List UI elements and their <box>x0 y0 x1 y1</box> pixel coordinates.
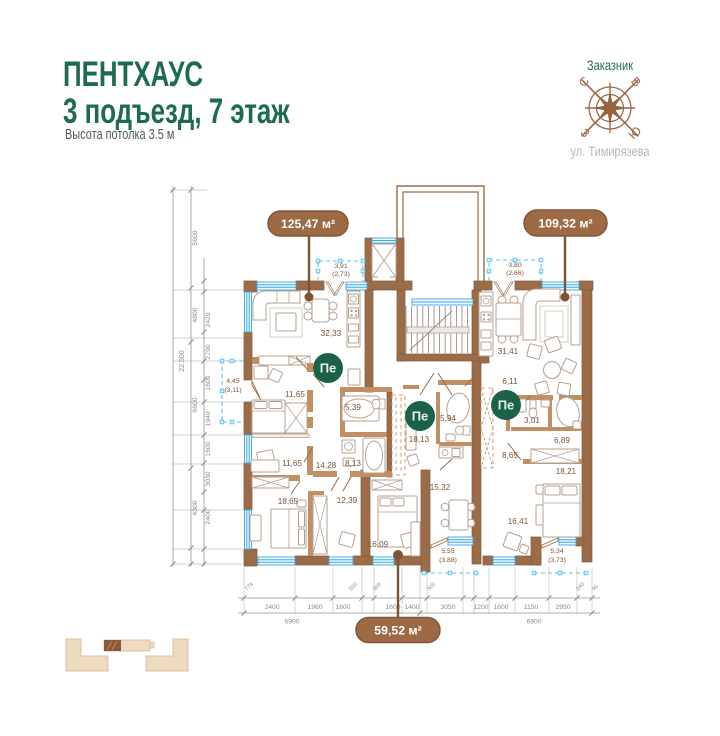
svg-text:1600: 1600 <box>335 604 350 611</box>
svg-text:5,55: 5,55 <box>441 548 454 555</box>
svg-text:ПЕНТХАУС: ПЕНТХАУС <box>63 54 203 94</box>
svg-text:2420: 2420 <box>205 312 212 327</box>
svg-text:6900: 6900 <box>284 619 299 626</box>
svg-text:22.500: 22.500 <box>179 350 186 372</box>
svg-text:8,13: 8,13 <box>345 459 361 468</box>
svg-text:32,33: 32,33 <box>321 329 342 338</box>
svg-text:18,65: 18,65 <box>278 497 299 506</box>
svg-text:3050: 3050 <box>440 604 455 611</box>
svg-text:6600: 6600 <box>192 397 199 412</box>
svg-text:(3,88): (3,88) <box>439 557 457 564</box>
svg-text:4800: 4800 <box>192 307 199 322</box>
svg-text:3030: 3030 <box>205 471 212 486</box>
svg-text:1940: 1940 <box>205 411 212 426</box>
svg-text:8,65: 8,65 <box>502 451 518 460</box>
svg-text:16,41: 16,41 <box>508 517 529 526</box>
svg-text:18,21: 18,21 <box>556 467 577 476</box>
svg-text:4300: 4300 <box>192 500 199 515</box>
svg-text:12,39: 12,39 <box>337 496 358 505</box>
svg-text:4,45: 4,45 <box>226 378 239 385</box>
svg-text:5,39: 5,39 <box>345 403 361 412</box>
svg-text:109,32 м²: 109,32 м² <box>538 217 592 231</box>
svg-text:Заказник: Заказник <box>587 58 634 73</box>
svg-text:1200: 1200 <box>473 604 488 611</box>
svg-text:2790: 2790 <box>205 344 212 359</box>
svg-text:1600: 1600 <box>205 375 212 390</box>
svg-text:(2,73): (2,73) <box>332 271 350 278</box>
svg-text:Пе: Пе <box>498 398 515 413</box>
svg-text:125,47 м²: 125,47 м² <box>281 217 335 231</box>
svg-text:14,28: 14,28 <box>316 461 337 470</box>
svg-text:2950: 2950 <box>555 604 570 611</box>
svg-text:18,13: 18,13 <box>409 435 430 444</box>
svg-text:(3,11): (3,11) <box>224 387 241 394</box>
svg-text:3,01: 3,01 <box>524 416 540 425</box>
svg-text:5600: 5600 <box>192 230 199 245</box>
svg-text:Пе: Пе <box>320 361 337 376</box>
svg-text:5,94: 5,94 <box>440 414 456 423</box>
svg-text:59,52 м²: 59,52 м² <box>374 624 421 638</box>
svg-text:Пе: Пе <box>412 409 429 424</box>
svg-text:31,41: 31,41 <box>498 347 519 356</box>
svg-text:6,11: 6,11 <box>502 377 518 386</box>
svg-text:2400: 2400 <box>264 604 279 611</box>
svg-text:1400: 1400 <box>404 604 419 611</box>
svg-text:(2,66): (2,66) <box>506 270 524 277</box>
svg-text:1600: 1600 <box>493 604 508 611</box>
svg-text:6,89: 6,89 <box>554 436 570 445</box>
svg-text:1150: 1150 <box>524 604 539 611</box>
svg-text:3,91: 3,91 <box>334 263 347 270</box>
svg-text:1960: 1960 <box>307 604 322 611</box>
svg-text:6900: 6900 <box>526 619 541 626</box>
svg-text:Высота потолка 3.5 м: Высота потолка 3.5 м <box>65 125 174 142</box>
svg-text:1600: 1600 <box>205 441 212 456</box>
svg-text:11,65: 11,65 <box>285 390 305 399</box>
svg-text:3,80: 3,80 <box>508 262 521 269</box>
svg-text:11,65: 11,65 <box>282 459 302 468</box>
svg-text:2400: 2400 <box>205 509 212 524</box>
svg-text:(3,73): (3,73) <box>548 557 566 564</box>
svg-text:16,09: 16,09 <box>368 540 389 549</box>
svg-text:5,34: 5,34 <box>550 548 563 555</box>
svg-text:15,32: 15,32 <box>430 483 451 492</box>
svg-text:ул. Тимирязева: ул. Тимирязева <box>570 144 649 159</box>
